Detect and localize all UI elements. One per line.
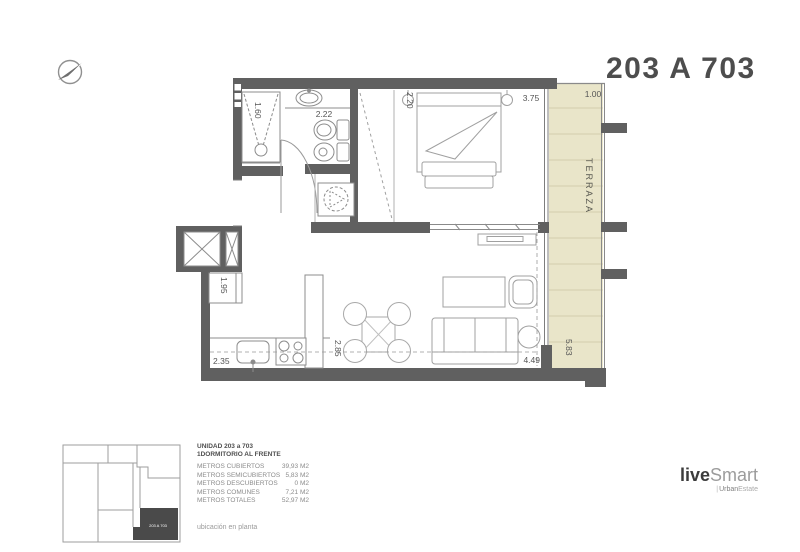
info-row-descubiertos: METROS DESCUBIERTOS 0 M2 — [197, 480, 309, 489]
terrace — [545, 83, 628, 381]
hall-door — [281, 140, 317, 213]
info-row-cubiertos: METROS CUBIERTOS 39,93 M2 — [197, 463, 309, 472]
info-row-totales: METROS TOTALES 52,97 M2 — [197, 497, 309, 506]
wardrobe — [360, 90, 394, 222]
washing-machine — [315, 174, 354, 222]
coffee-table — [443, 277, 505, 307]
info-unit-line: UNIDAD 203 a 703 — [197, 443, 309, 451]
toilet — [314, 120, 349, 140]
info-panel: UNIDAD 203 a 703 1DORMITORIO AL FRENTE M… — [197, 443, 309, 506]
key-plan: 203 A 703 — [63, 445, 180, 542]
logo-smart: Smart — [710, 465, 758, 485]
row-value: 52,97 M2 — [282, 497, 309, 506]
key-plan-caption: ubicación en planta — [197, 524, 257, 531]
terrace-label: TERRAZA — [584, 158, 594, 214]
logo-sub-bold: Urban — [719, 486, 738, 493]
info-type-line: 1DORMITORIO AL FRENTE — [197, 451, 309, 459]
dining-set — [344, 303, 411, 363]
brand-logo: liveSmart |UrbanEstate — [640, 465, 758, 494]
key-plan-highlight-label: 203 A 703 — [149, 523, 168, 528]
row-value: 0 M2 — [295, 480, 309, 489]
unit-title: 203 A 703 — [606, 52, 776, 86]
north-compass-icon — [58, 61, 83, 84]
dim-living-width: 4.49 — [523, 355, 540, 365]
kitchen-sink — [237, 341, 269, 372]
wall-marker — [235, 84, 242, 107]
entry-opening — [233, 180, 242, 226]
dim-bath-width: 2.22 — [316, 109, 333, 119]
row-label: METROS DESCUBIERTOS — [197, 480, 278, 489]
row-label: METROS COMUNES — [197, 489, 260, 498]
info-row-semicubiertos: METROS SEMICUBIERTOS 5,83 M2 — [197, 472, 309, 481]
logo-subtitle: |UrbanEstate — [640, 485, 758, 494]
dim-shower-width: 1.60 — [253, 102, 263, 119]
logo-divider: | — [716, 486, 718, 493]
dim-bedroom-depth: 2.20 — [405, 92, 415, 109]
floorplan-page: 1.00 3.75 2.22 1.60 2.20 1.95 2.35 2.85 … — [0, 0, 800, 552]
row-value: 39,93 M2 — [282, 463, 309, 472]
walls — [176, 78, 606, 387]
dim-kitchen-fridge: 1.95 — [219, 277, 229, 294]
dim-kitchen-width: 2.35 — [213, 356, 230, 366]
sliding-partition — [430, 224, 540, 230]
tv-console — [478, 234, 536, 245]
stove — [276, 338, 306, 365]
dim-bedroom-width: 3.75 — [523, 93, 540, 103]
bedroom-furniture — [360, 90, 513, 222]
armchair — [509, 276, 537, 308]
dim-terrace-length: 5.83 — [564, 339, 574, 356]
sofa — [432, 318, 518, 364]
vanity-sink — [285, 89, 350, 108]
info-row-comunes: METROS COMUNES 7,21 M2 — [197, 489, 309, 498]
dim-terrace-width: 1.00 — [585, 89, 602, 99]
elevator-shaft — [184, 232, 238, 266]
bidet — [314, 143, 349, 161]
double-bed — [417, 93, 501, 188]
row-label: METROS CUBIERTOS — [197, 463, 264, 472]
row-value: 5,83 M2 — [286, 472, 310, 481]
logo-live: live — [680, 465, 710, 485]
logo-sub-light: Estate — [738, 486, 758, 493]
row-value: 7,21 M2 — [286, 489, 310, 498]
row-label: METROS TOTALES — [197, 497, 256, 506]
logo-wordmark: liveSmart — [640, 465, 758, 485]
living-furniture — [432, 234, 540, 364]
dim-kitchen-depth: 2.85 — [333, 340, 343, 357]
row-label: METROS SEMICUBIERTOS — [197, 472, 280, 481]
